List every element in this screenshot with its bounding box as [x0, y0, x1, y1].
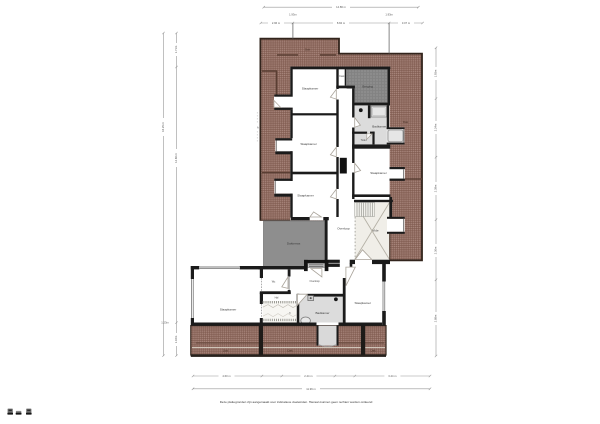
svg-text:Vide: Vide	[372, 229, 378, 233]
svg-text:Deze plattegronden zijn aangem: Deze plattegronden zijn aangemaakt voor …	[220, 400, 373, 404]
svg-text:Dak: Dak	[223, 349, 229, 353]
svg-text:14.86 m: 14.86 m	[336, 5, 346, 9]
svg-text:Berging: Berging	[362, 85, 373, 89]
svg-text:1.93m: 1.93m	[289, 13, 297, 17]
svg-text:Slaapkamer: Slaapkamer	[220, 307, 237, 311]
svg-text:Dak: Dak	[370, 349, 376, 353]
svg-text:Slaapkamer: Slaapkamer	[302, 87, 319, 91]
svg-text:Slaapkamer: Slaapkamer	[355, 301, 372, 305]
svg-text:2.30m: 2.30m	[434, 246, 438, 254]
svg-text:1.93m: 1.93m	[385, 13, 393, 17]
svg-text:2.39m: 2.39m	[434, 184, 438, 192]
svg-text:2.96 m: 2.96 m	[272, 21, 281, 25]
svg-text:12.80 m: 12.80 m	[174, 152, 178, 162]
svg-text:4.60 m: 4.60 m	[222, 374, 231, 378]
svg-text:3.44 m: 3.44 m	[388, 374, 397, 378]
svg-text:Slaapkamer: Slaapkamer	[297, 194, 314, 198]
svg-text:Dak: Dak	[403, 120, 409, 124]
svg-text:Dak: Dak	[287, 349, 293, 353]
svg-text:Toilet: Toilet	[361, 139, 367, 142]
svg-text:Overloop: Overloop	[337, 226, 350, 230]
svg-text:Overloop: Overloop	[310, 280, 321, 283]
svg-text:1.23m: 1.23m	[161, 321, 169, 325]
svg-text:2.24m: 2.24m	[434, 123, 438, 131]
svg-text:Hal: Hal	[275, 297, 279, 300]
svg-text:11.96 m: 11.96 m	[306, 387, 316, 391]
svg-text:Dakterras: Dakterras	[287, 242, 301, 246]
svg-text:2.44 m: 2.44 m	[304, 374, 313, 378]
svg-text:1.93m: 1.93m	[434, 69, 438, 77]
svg-text:Badkamer: Badkamer	[315, 311, 329, 315]
svg-text:8.84 m: 8.84 m	[337, 21, 346, 25]
svg-text:Kast: Kast	[339, 75, 344, 78]
svg-text:16.25 m: 16.25 m	[161, 121, 165, 131]
svg-text:3.07 m: 3.07 m	[402, 21, 411, 25]
svg-text:Slaapkamer: Slaapkamer	[370, 171, 387, 175]
svg-text:1.71m: 1.71m	[174, 45, 178, 53]
svg-text:Slaapkamer: Slaapkamer	[300, 142, 317, 146]
svg-text:2.88m: 2.88m	[434, 314, 438, 322]
svg-text:Badkamer: Badkamer	[372, 124, 386, 128]
svg-text:1.16m: 1.16m	[174, 335, 178, 343]
svg-text:Dak: Dak	[305, 47, 311, 51]
